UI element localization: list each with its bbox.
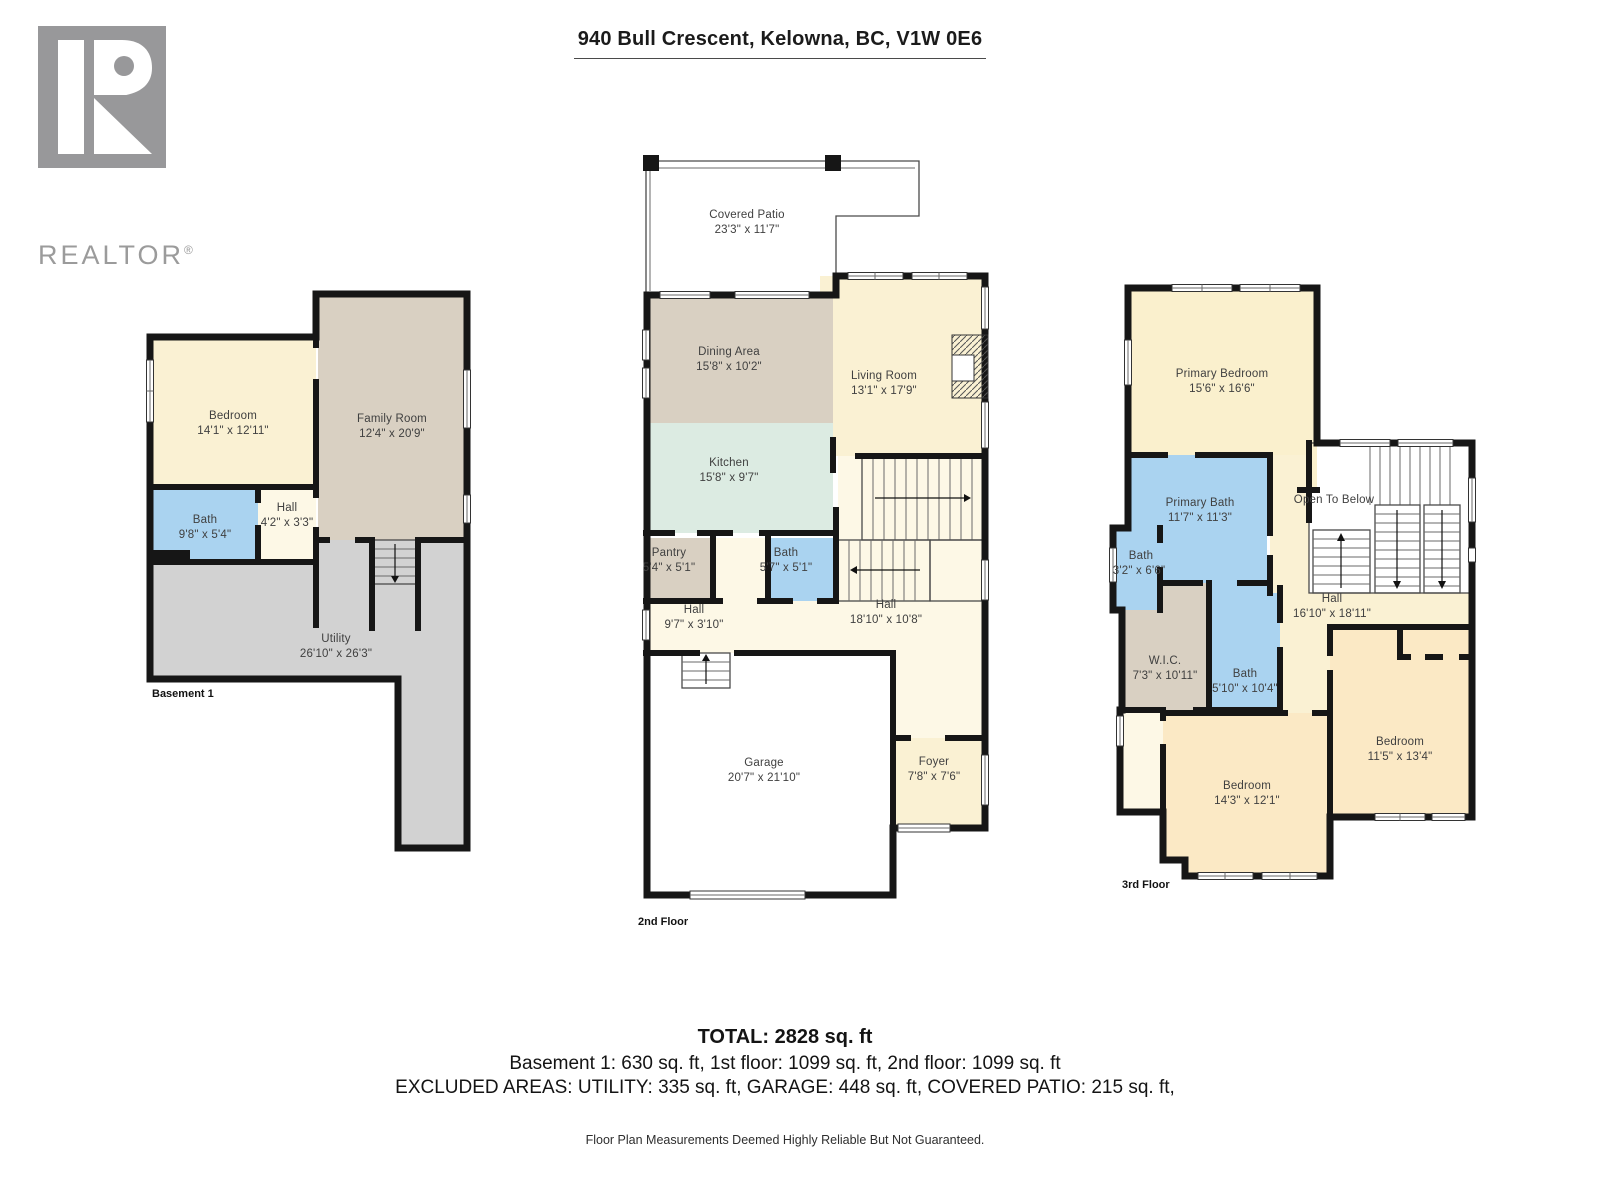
total-area: TOTAL: 2828 sq. ft xyxy=(0,1026,1570,1049)
room-label: Bath xyxy=(774,547,798,559)
room-label: Hall xyxy=(277,502,298,514)
room-dims: 7'3" x 10'11" xyxy=(1133,670,1198,682)
area-summary: TOTAL: 2828 sq. ft Basement 1: 630 sq. f… xyxy=(0,1026,1570,1101)
room-label: Bedroom xyxy=(1376,736,1424,748)
room-dims: 5'10" x 10'4" xyxy=(1212,683,1278,695)
room-dims: 14'1" x 12'11" xyxy=(197,425,268,437)
room-label: Primary Bedroom xyxy=(1176,368,1268,380)
room-label: Kitchen xyxy=(709,457,749,469)
room-dims: 11'7" x 11'3" xyxy=(1168,512,1232,524)
room-dims: 5'7" x 5'1" xyxy=(760,562,812,574)
hall-nook xyxy=(1120,710,1163,812)
room-label: Bedroom xyxy=(209,410,257,422)
room-dims: 14'3" x 12'1" xyxy=(1214,795,1280,807)
room-dims: 23'3" x 11'7" xyxy=(715,224,780,236)
realtor-logo: REALTOR® xyxy=(38,26,208,269)
room-dims: 5'4" x 5'1" xyxy=(643,562,695,574)
room-label: Bedroom xyxy=(1223,780,1271,792)
room-label: Primary Bath xyxy=(1166,497,1235,509)
room-dims: 11'5" x 13'4" xyxy=(1368,751,1433,763)
excluded-areas: EXCLUDED AREAS: UTILITY: 335 sq. ft, GAR… xyxy=(0,1077,1570,1099)
floor-plan-3rd: Primary Bedroom 15'6" x 16'6" Primary Ba… xyxy=(1095,275,1485,895)
room-dims: 9'7" x 3'10" xyxy=(664,619,723,631)
room-dims: 7'8" x 7'6" xyxy=(908,771,960,783)
floor-label-2nd: 2nd Floor xyxy=(638,916,689,928)
room-label: Utility xyxy=(321,633,351,645)
room-label: Bath xyxy=(1129,550,1153,562)
room-dims: 12'4" x 20'9" xyxy=(359,428,425,440)
corridor xyxy=(893,653,985,738)
room-label: Family Room xyxy=(357,413,427,425)
room-dims: 3'2" x 6'6" xyxy=(1113,565,1165,577)
room-dims: 16'10" x 18'11" xyxy=(1293,608,1371,620)
room-label: Hall xyxy=(684,604,705,616)
room-label: Bath xyxy=(1233,668,1257,680)
header: 940 Bull Crescent, Kelowna, BC, V1W 0E6 xyxy=(0,28,1560,59)
floor-areas: Basement 1: 630 sq. ft, 1st floor: 1099 … xyxy=(0,1053,1570,1075)
floor-plan-basement: Bedroom 14'1" x 12'11" Family Room 12'4"… xyxy=(140,280,480,860)
room-dims: 26'10" x 26'3" xyxy=(300,648,372,660)
fireplace xyxy=(952,335,988,398)
room-dims: 15'8" x 10'2" xyxy=(696,361,762,373)
room-label: Covered Patio xyxy=(709,209,784,221)
floor-label-basement: Basement 1 xyxy=(152,688,214,700)
room-label: W.I.C. xyxy=(1149,655,1182,667)
room-dims: 15'6" x 16'6" xyxy=(1189,383,1255,395)
room-dims: 4'2" x 3'3" xyxy=(261,517,313,529)
room-dims: 18'10" x 10'8" xyxy=(850,614,922,626)
room-dims: 20'7" x 21'10" xyxy=(728,772,800,784)
room-label: Hall xyxy=(876,599,897,611)
stairs-3rd xyxy=(1309,443,1472,593)
floor-plan-2nd: Covered Patio 23'3" x 11'7" Dining Area … xyxy=(630,150,1000,930)
registered-mark: ® xyxy=(184,243,193,257)
room-dims: 15'8" x 9'7" xyxy=(699,472,758,484)
disclaimer: Floor Plan Measurements Deemed Highly Re… xyxy=(0,1133,1570,1147)
room-dims: 9'8" x 5'4" xyxy=(179,529,231,541)
room-foyer xyxy=(893,738,985,828)
room-label: Pantry xyxy=(652,547,686,559)
realtor-wordmark: REALTOR® xyxy=(38,242,208,269)
floor-label-3rd: 3rd Floor xyxy=(1122,879,1170,891)
room-label: Foyer xyxy=(919,756,949,768)
room-label: Garage xyxy=(744,757,784,769)
room-label: Living Room xyxy=(851,370,917,382)
room-dining xyxy=(646,295,833,423)
room-label: Dining Area xyxy=(698,346,760,358)
open-to-below-label: Open To Below xyxy=(1294,494,1375,506)
page-title: 940 Bull Crescent, Kelowna, BC, V1W 0E6 xyxy=(574,28,987,59)
room-dims: 13'1" x 17'9" xyxy=(851,385,917,397)
room-label: Hall xyxy=(1322,593,1343,605)
room-label: Bath xyxy=(193,514,217,526)
